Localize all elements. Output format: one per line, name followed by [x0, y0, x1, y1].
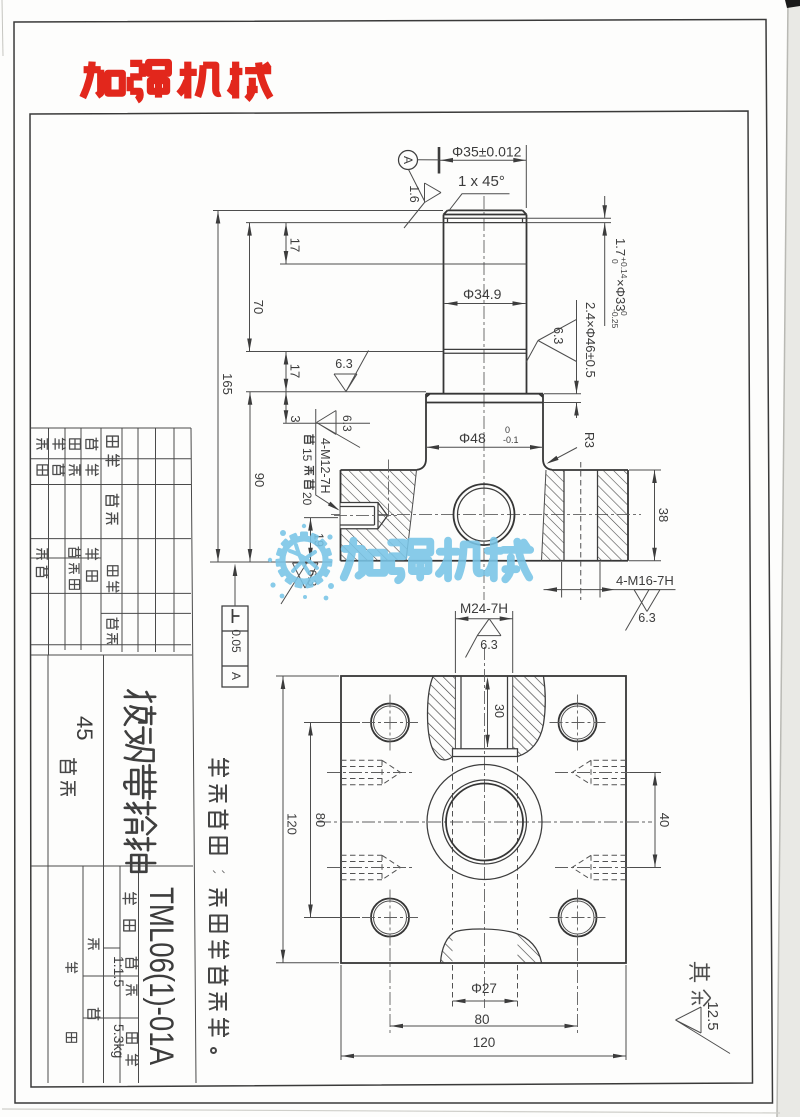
svg-text:1:1.5: 1:1.5 [111, 956, 127, 987]
svg-text:5.3kg: 5.3kg [111, 1024, 127, 1058]
svg-text:120: 120 [473, 1035, 496, 1050]
svg-text:20: 20 [300, 492, 314, 506]
svg-text:38: 38 [656, 508, 671, 522]
svg-text:×Φ33: ×Φ33 [613, 279, 628, 311]
svg-text:6.3: 6.3 [340, 415, 354, 432]
svg-text:1 x 45°: 1 x 45° [458, 173, 505, 190]
svg-text:Φ48: Φ48 [459, 430, 486, 446]
svg-text:12.5: 12.5 [704, 1001, 721, 1030]
svg-text:Φ27: Φ27 [471, 981, 497, 996]
svg-text:4-M12-7H: 4-M12-7H [318, 438, 332, 494]
svg-text:1.6: 1.6 [407, 185, 421, 202]
svg-text:6.3: 6.3 [480, 638, 497, 652]
svg-text:30: 30 [492, 704, 506, 718]
svg-text:A: A [229, 672, 243, 680]
svg-text:1.7: 1.7 [613, 238, 628, 256]
svg-text:Φ35±0.012: Φ35±0.012 [452, 144, 522, 160]
svg-text:165: 165 [220, 373, 235, 395]
svg-text:6.3: 6.3 [335, 357, 352, 371]
svg-text:6.3: 6.3 [638, 611, 655, 625]
svg-text:4-M16-7H: 4-M16-7H [616, 573, 674, 588]
svg-text:45: 45 [72, 716, 97, 740]
svg-text:0: 0 [610, 259, 620, 264]
svg-text:15: 15 [300, 448, 314, 462]
svg-text:80: 80 [474, 1012, 489, 1027]
svg-text:0: 0 [505, 425, 510, 435]
svg-text:TML06(1)-01A: TML06(1)-01A [142, 887, 180, 1065]
svg-text:-0.1: -0.1 [503, 435, 519, 445]
svg-text:0.05: 0.05 [229, 629, 243, 653]
svg-text:6.3: 6.3 [551, 327, 565, 344]
svg-text:90: 90 [252, 473, 267, 487]
svg-text:2.4×Φ46±0.5: 2.4×Φ46±0.5 [583, 302, 598, 378]
svg-text:M24-7H: M24-7H [460, 601, 508, 616]
svg-text:17: 17 [288, 364, 303, 378]
svg-text:3: 3 [288, 415, 303, 422]
svg-text:Φ34.9: Φ34.9 [463, 286, 502, 302]
svg-text:120: 120 [285, 813, 300, 835]
svg-text:40: 40 [657, 813, 672, 827]
svg-text:17: 17 [288, 238, 303, 252]
svg-text:A: A [401, 156, 415, 164]
svg-text:70: 70 [251, 300, 266, 314]
svg-text:80: 80 [313, 813, 328, 827]
svg-text:R3: R3 [582, 432, 596, 448]
svg-text:-0.25: -0.25 [610, 309, 620, 329]
